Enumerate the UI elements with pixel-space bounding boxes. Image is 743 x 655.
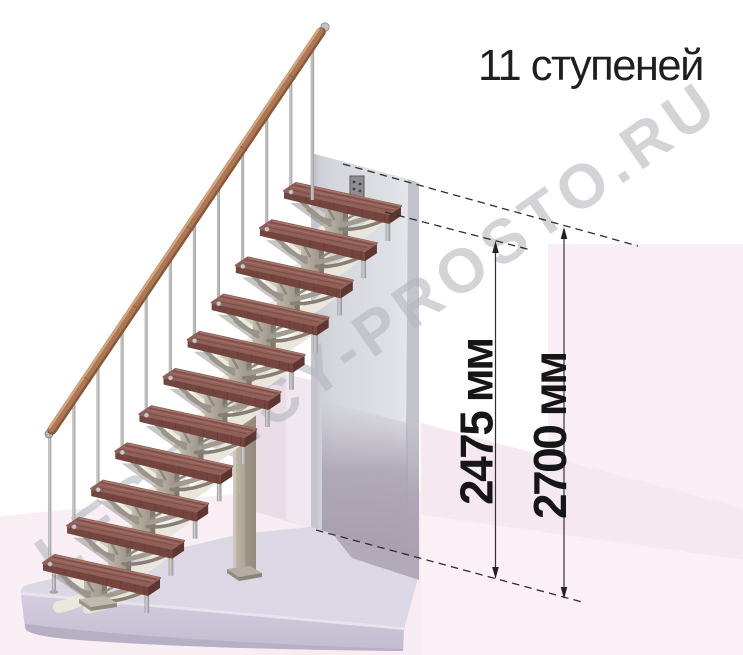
- svg-text:2700 мм: 2700 мм: [524, 353, 576, 519]
- svg-text:11 ступеней: 11 ступеней: [478, 42, 703, 90]
- svg-text:2475 мм: 2475 мм: [451, 339, 503, 505]
